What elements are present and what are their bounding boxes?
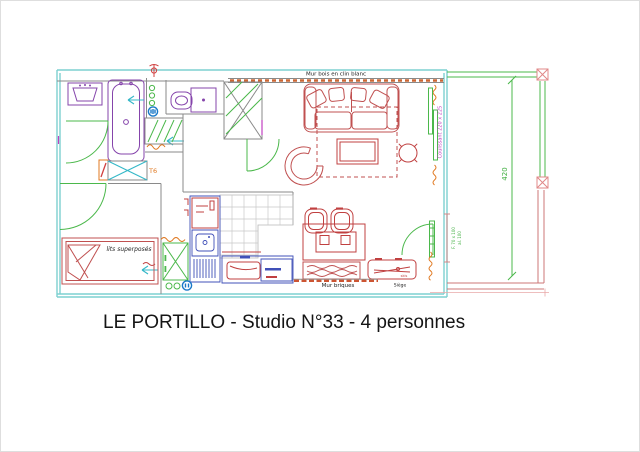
dimension-420: 420 xyxy=(501,76,516,280)
window-right: F. 70 x 100 al. 100 xyxy=(430,214,463,262)
riser-circles-icon xyxy=(149,85,154,105)
headboard-chair xyxy=(305,208,327,234)
toilet xyxy=(171,88,216,112)
bathtub xyxy=(108,80,144,161)
drain-circle-icon xyxy=(148,107,157,116)
outlet-marks xyxy=(184,199,188,216)
living-door-arc xyxy=(247,139,279,171)
seat-label: Siège xyxy=(394,282,407,289)
sliding-door: Coulissant 220 x 225 xyxy=(429,85,444,185)
insulation-squiggle xyxy=(433,85,436,105)
flow-arrow-icon xyxy=(128,96,144,104)
kitchen xyxy=(184,195,293,283)
entry-steps xyxy=(145,118,183,149)
vanity-sink xyxy=(68,83,102,105)
window-sill-label: al. 100 xyxy=(457,231,462,245)
kitchen-counter-left xyxy=(190,196,220,282)
page-title: LE PORTILLO - Studio N°33 - 4 personnes xyxy=(103,312,465,334)
cabinet-t6 xyxy=(99,160,147,180)
interior-walls xyxy=(108,78,293,294)
side-table xyxy=(399,144,417,162)
window-size-label: F. 70 x 100 xyxy=(451,227,456,249)
wardrobe xyxy=(161,238,188,281)
balcony-bottom xyxy=(430,190,549,297)
skis-label: skis xyxy=(401,274,408,278)
headboard-chair xyxy=(331,208,353,234)
bunk-bed: lits superposés xyxy=(62,238,158,284)
kitchen-counter-bottom xyxy=(222,252,293,283)
coffee-table xyxy=(337,139,378,164)
dishwasher-vent xyxy=(194,259,215,278)
storage-bench xyxy=(303,262,360,279)
dimension-label: 420 xyxy=(501,167,509,180)
kitchen-sink xyxy=(192,230,218,256)
sliding-door-label: Coulissant 220 x 225 xyxy=(438,106,444,159)
double-bed xyxy=(303,208,365,280)
ski-seat: skis Siège xyxy=(368,258,416,289)
balcony-post xyxy=(537,177,548,188)
wall-top-wood: Mur bois en clin blanc xyxy=(57,72,444,83)
tiled-floor xyxy=(220,195,293,258)
appliance-circles-icon xyxy=(166,281,192,290)
flow-arrow-icon xyxy=(142,263,158,275)
wall-top-label: Mur bois en clin blanc xyxy=(306,72,366,78)
bedroom-door-arc xyxy=(60,184,106,230)
balcony-top xyxy=(447,69,548,188)
balcony-post xyxy=(537,69,548,80)
bathroom-door-arc xyxy=(66,121,108,163)
unit-type-label: T6 xyxy=(148,167,157,175)
fridge xyxy=(192,198,218,228)
wall-bottom-label: Mur briques xyxy=(322,283,355,289)
floor-plan-svg: Mur bois en clin blanc xyxy=(0,0,640,452)
wall-bottom-brick: Mur briques xyxy=(293,279,378,289)
insulation-squiggle xyxy=(433,165,436,185)
bunk-bed-label: lits superposés xyxy=(106,246,151,253)
sofa xyxy=(304,84,399,132)
living-room xyxy=(285,84,417,185)
entry-closet xyxy=(224,82,262,139)
